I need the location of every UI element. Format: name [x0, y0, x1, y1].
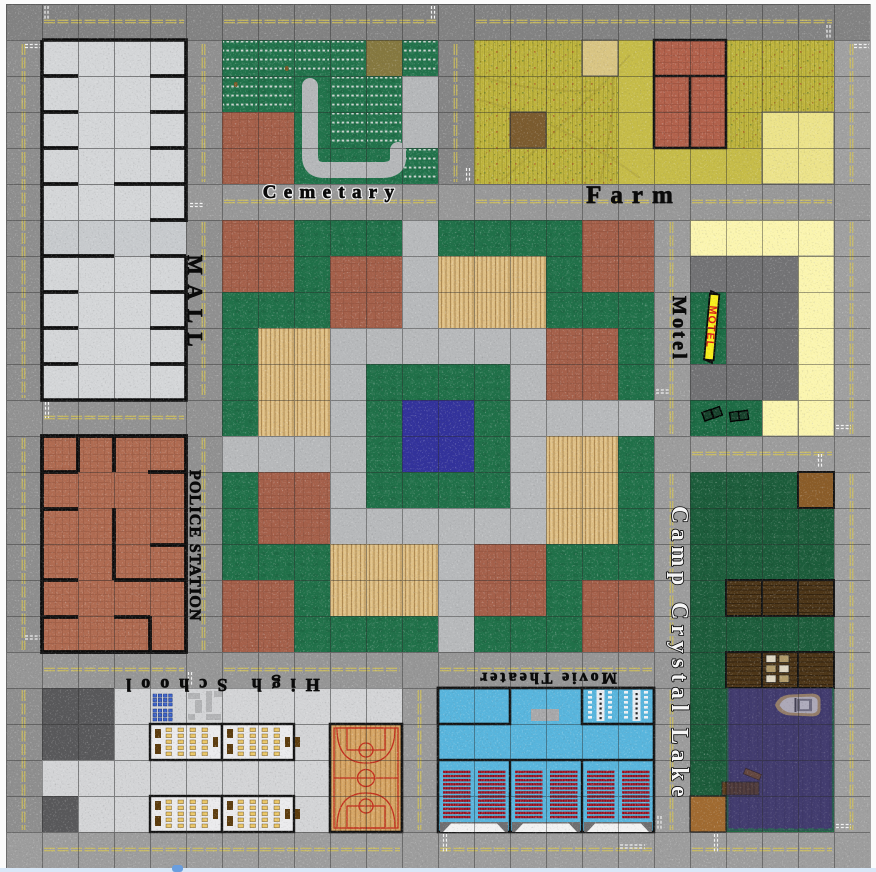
svg-text:Cemetary: Cemetary — [263, 182, 402, 203]
svg-text:Motel: Motel — [668, 296, 690, 362]
svg-text:MALL: MALL — [183, 255, 207, 356]
svg-text:Farm: Farm — [586, 182, 682, 209]
svg-text:Camp Crystal Lake: Camp Crystal Lake — [666, 506, 692, 802]
svg-text:High School: High School — [116, 675, 320, 695]
svg-text:Movie Theater: Movie Theater — [477, 669, 617, 686]
svg-text:POLICE STATION: POLICE STATION — [186, 470, 203, 622]
